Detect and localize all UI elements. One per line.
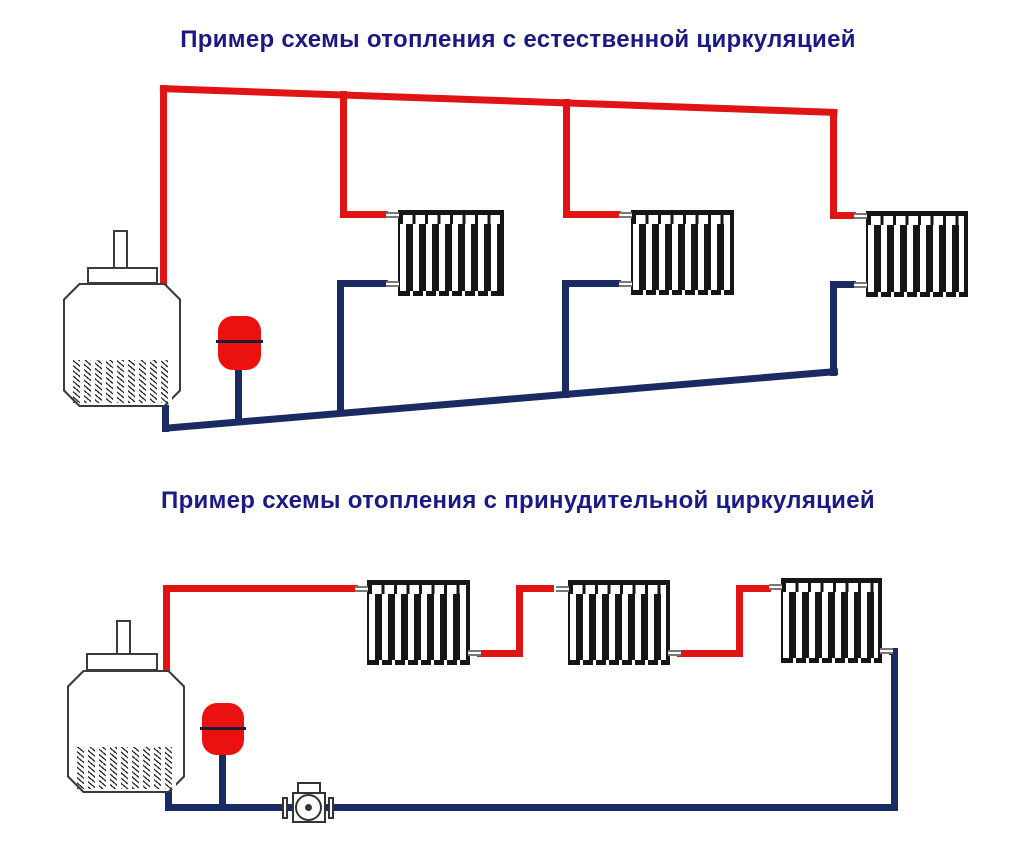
- boiler-chimney-icon: [113, 230, 128, 270]
- radiator-outlet-stub: [880, 648, 893, 654]
- radiator-feet: [783, 658, 878, 663]
- supply-riser-pipe: [163, 585, 170, 675]
- boiler-vent-grille-icon: [73, 360, 172, 403]
- radiator-sections: [868, 225, 964, 292]
- radiator-3: [866, 211, 968, 297]
- return-drop-pipe-1: [337, 280, 344, 414]
- return-downpipe: [891, 648, 898, 811]
- supply-drop-pipe-2: [563, 99, 570, 218]
- radiator-feet: [570, 660, 666, 665]
- expansion-tank-drop-pipe: [235, 366, 242, 425]
- expansion-tank-band: [200, 727, 246, 730]
- radiator-ticks: [868, 216, 964, 225]
- supply-link-2-riser-pipe: [736, 585, 743, 657]
- radiator-inlet-stub: [386, 212, 399, 218]
- radiator-feet: [369, 660, 466, 665]
- supply-branch-pipe-2: [563, 211, 621, 218]
- radiator-ticks: [783, 583, 878, 592]
- radiator-inlet-stub: [854, 213, 867, 219]
- radiator-sections: [570, 594, 666, 660]
- radiator-ticks: [400, 215, 500, 224]
- radiator-inlet-stub: [769, 584, 782, 590]
- radiator-feet: [400, 291, 500, 296]
- return-drop-pipe-2: [562, 280, 569, 398]
- radiator-sections: [400, 224, 500, 291]
- return-main-pipe: [165, 804, 898, 811]
- supply-riser-pipe: [160, 85, 167, 287]
- supply-link-2-top-pipe: [736, 585, 771, 592]
- supply-link-2-bottom-pipe: [677, 650, 743, 657]
- pump-flange-left: [282, 797, 288, 819]
- supply-main-sloped-pipe: [160, 85, 838, 116]
- radiator-outlet-stub: [386, 281, 399, 287]
- supply-main-pipe: [163, 585, 358, 592]
- supply-drop-pipe-3: [830, 109, 837, 218]
- radiator-3: [781, 578, 882, 663]
- heating-schemes-illustration: Пример схемы отопления с естественной ци…: [0, 0, 1036, 860]
- radiator-2: [568, 580, 670, 665]
- boiler-top-plate: [87, 267, 158, 284]
- radiator-ticks: [633, 215, 730, 224]
- supply-drop-pipe-1: [340, 91, 347, 218]
- radiator-feet: [868, 292, 964, 297]
- diagram-forced-title: Пример схемы отопления с принудительной …: [0, 487, 1036, 515]
- return-branch-pipe-1: [340, 280, 388, 287]
- radiator-outlet-stub: [854, 282, 867, 288]
- pump-center-dot-icon: [305, 804, 312, 811]
- pump-flange-right: [328, 797, 334, 819]
- return-drop-pipe-3: [830, 281, 837, 376]
- radiator-sections: [783, 592, 878, 658]
- boiler-return-pipe: [165, 790, 172, 811]
- expansion-tank-body: [218, 316, 261, 370]
- radiator-1: [398, 210, 504, 296]
- boiler-vent-grille-icon: [77, 747, 176, 789]
- radiator-outlet-stub: [668, 650, 681, 656]
- diagram-natural-title: Пример схемы отопления с естественной ци…: [0, 26, 1036, 54]
- radiator-ticks: [369, 585, 466, 594]
- radiator-ticks: [570, 585, 666, 594]
- radiator-inlet-stub: [619, 212, 632, 218]
- expansion-tank-drop-pipe: [219, 750, 226, 811]
- radiator-sections: [633, 224, 730, 290]
- supply-link-1-riser-pipe: [516, 585, 523, 657]
- radiator-1: [367, 580, 470, 665]
- expansion-tank-band: [216, 340, 263, 343]
- supply-link-1-top-pipe: [516, 585, 554, 592]
- return-main-sloped-pipe: [162, 368, 838, 432]
- radiator-outlet-stub: [468, 650, 481, 656]
- radiator-feet: [633, 290, 730, 295]
- supply-branch-pipe-1: [340, 211, 388, 218]
- boiler-top-plate: [86, 653, 158, 671]
- radiator-2: [631, 210, 734, 295]
- radiator-inlet-stub: [556, 586, 569, 592]
- radiator-inlet-stub: [355, 586, 368, 592]
- return-branch-pipe-2: [562, 280, 621, 287]
- radiator-sections: [369, 594, 466, 660]
- supply-branch-pipe-3: [830, 212, 856, 219]
- radiator-outlet-stub: [619, 281, 632, 287]
